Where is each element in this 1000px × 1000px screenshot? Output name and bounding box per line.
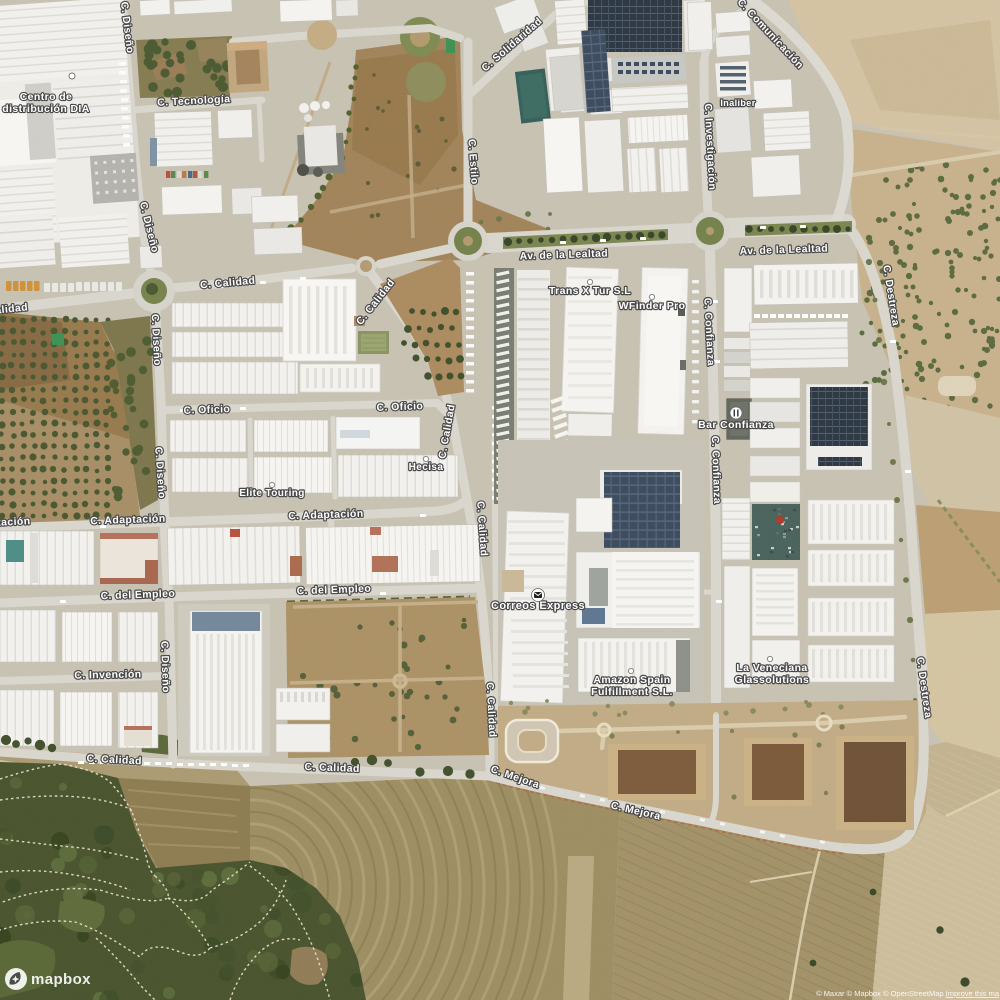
svg-text:C. Oficio: C. Oficio [376, 400, 423, 414]
svg-text:mapbox: mapbox [31, 971, 91, 988]
svg-text:C. Invención: C. Invención [74, 668, 141, 681]
svg-text:Amazon Spain: Amazon Spain [593, 674, 670, 686]
svg-text:C. Calidad: C. Calidad [304, 761, 360, 775]
svg-text:C. Confianza: C. Confianza [709, 436, 723, 505]
svg-text:Centro de: Centro de [20, 91, 73, 103]
svg-text:C. Diseño: C. Diseño [158, 641, 172, 693]
svg-text:Glassolutions: Glassolutions [735, 674, 810, 686]
svg-text:distribución DIA: distribución DIA [2, 103, 89, 115]
svg-text:WFinder Pro: WFinder Pro [619, 300, 686, 312]
svg-text:tación: tación [0, 515, 31, 529]
svg-text:Inaliber: Inaliber [720, 98, 755, 108]
svg-text:Bar Confianza: Bar Confianza [698, 419, 774, 431]
svg-text:© Maxar © Mapbox © OpenStreetM: © Maxar © Mapbox © OpenStreetMap Improve… [816, 989, 1000, 998]
svg-text:Fulfillment S.L.: Fulfillment S.L. [591, 686, 673, 698]
svg-text:Elite Touring: Elite Touring [239, 488, 305, 499]
svg-text:Hecisa: Hecisa [409, 462, 444, 473]
svg-text:Trans X Tur S.L: Trans X Tur S.L [549, 285, 631, 297]
svg-text:C. Oficio: C. Oficio [183, 403, 230, 417]
svg-text:La Veneciana: La Veneciana [736, 662, 807, 674]
